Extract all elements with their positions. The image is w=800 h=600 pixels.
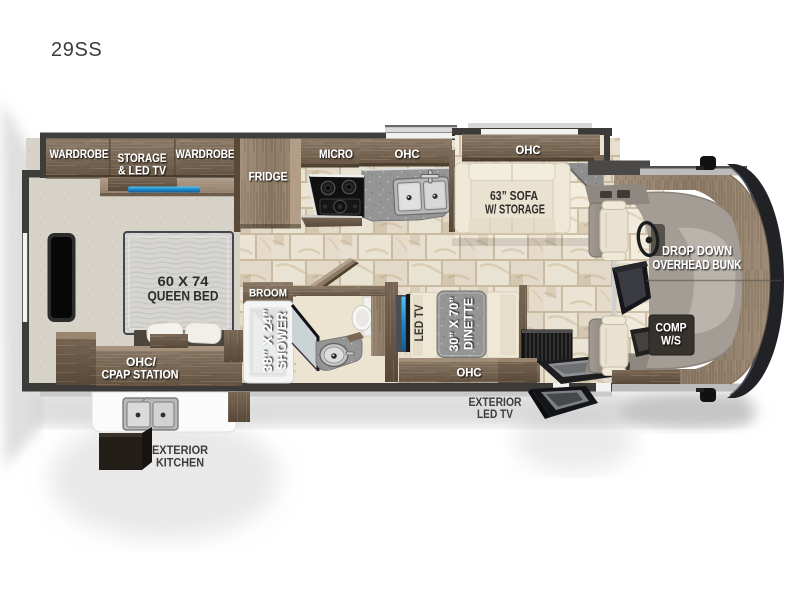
svg-text:W/ STORAGE: W/ STORAGE	[485, 203, 545, 217]
svg-text:OHC: OHC	[516, 145, 541, 157]
svg-text:SHOWER: SHOWER	[275, 312, 289, 370]
svg-text:MICRO: MICRO	[319, 149, 353, 161]
svg-text:BROOM: BROOM	[249, 288, 287, 300]
svg-text:OHC: OHC	[457, 368, 482, 380]
svg-text:W/S: W/S	[661, 336, 681, 348]
svg-text:30” X 70”: 30” X 70”	[447, 297, 461, 352]
svg-text:OVERHEAD BUNK: OVERHEAD BUNK	[653, 257, 742, 272]
svg-text:DINETTE: DINETTE	[462, 298, 476, 350]
svg-text:KITCHEN: KITCHEN	[156, 456, 204, 470]
svg-text:38” X 24”: 38” X 24”	[261, 309, 275, 373]
svg-text:QUEEN BED: QUEEN BED	[148, 288, 219, 304]
svg-text:63” SOFA: 63” SOFA	[490, 189, 538, 203]
svg-text:COMP: COMP	[656, 323, 687, 335]
svg-text:WARDROBE: WARDROBE	[176, 149, 235, 161]
svg-text:CPAP STATION: CPAP STATION	[102, 370, 179, 382]
svg-text:& LED TV: & LED TV	[118, 166, 166, 178]
svg-text:OHC/: OHC/	[126, 357, 157, 369]
svg-text:OHC: OHC	[395, 149, 420, 161]
svg-text:EXTERIOR: EXTERIOR	[469, 397, 523, 409]
svg-text:FRIDGE: FRIDGE	[249, 172, 288, 184]
svg-text:STORAGE: STORAGE	[118, 153, 167, 165]
svg-text:LED TV: LED TV	[412, 305, 426, 342]
svg-text:29SS: 29SS	[51, 39, 102, 61]
svg-text:LED TV: LED TV	[477, 409, 513, 421]
svg-text:WARDROBE: WARDROBE	[50, 149, 109, 161]
svg-text:DROP DOWN: DROP DOWN	[662, 243, 732, 258]
